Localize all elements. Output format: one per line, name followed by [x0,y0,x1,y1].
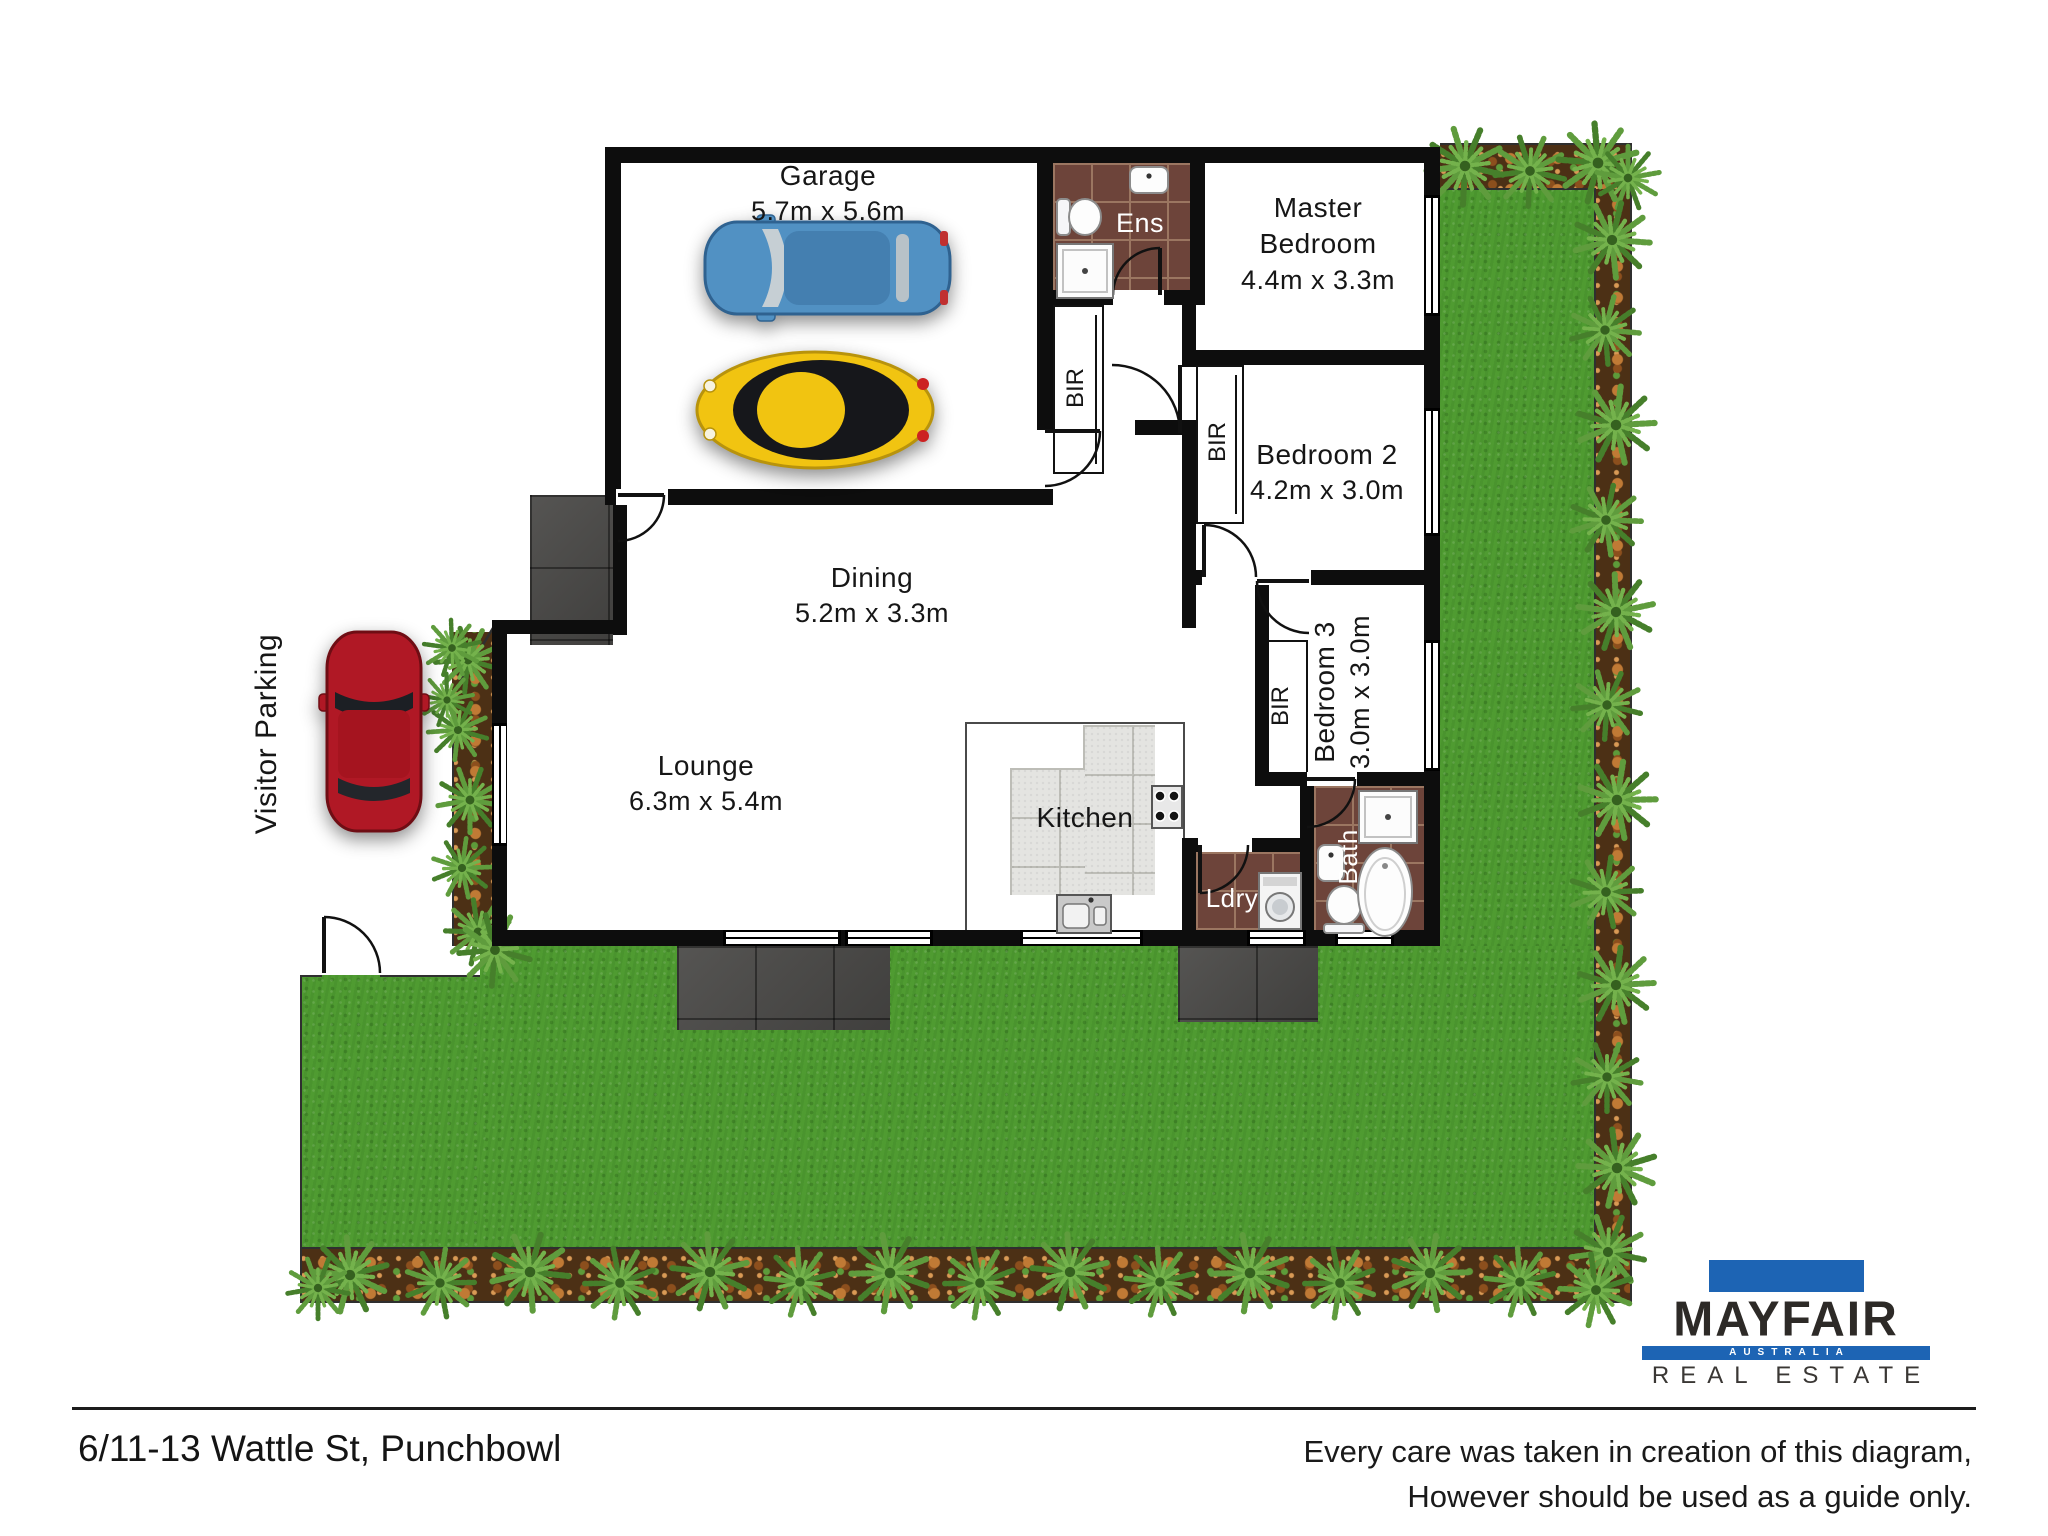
room-dims: 6.3m x 5.4m [586,784,826,819]
bedroom2-door [1202,523,1258,579]
shower-icon [1358,790,1418,844]
window-laundry [1247,930,1306,946]
disclaimer-line2: However should be used as a guide only. [1303,1475,1972,1520]
room-dims: 4.4m x 3.3m [1196,263,1440,298]
fern-plant-icon [1567,563,1664,660]
logo-tagline: REAL ESTATE [1636,1362,1936,1390]
garage-entry-door [616,493,670,547]
room-dims: 5.2m x 3.3m [752,596,992,631]
car-blue-top-view [700,213,955,323]
window-lounge-left [492,723,507,846]
lounge-label: Lounge 6.3m x 5.4m [586,748,826,819]
laundry-label: Ldry [1192,882,1272,916]
room-dims: 4.2m x 3.0m [1222,473,1432,508]
car-red-top-view [318,628,430,835]
patio-lounge [677,946,890,1030]
sink-icon [1128,165,1170,195]
footer-divider [72,1407,1976,1410]
bir-label-bedroom2: BIR [1204,402,1232,482]
window-lounge2 [845,930,933,946]
fern-plant-icon [1200,1223,1301,1324]
front-gate-door [320,913,384,977]
wall-master-bottom [1196,350,1424,365]
room-dims: 5.7m x 5.6m [708,194,948,229]
room-dims: 3.0m x 3.0m [1343,612,1378,772]
toilet-icon [1055,194,1103,240]
bath-label: Bath [1332,807,1366,907]
wall-hall-lower [1182,435,1196,628]
fern-plant-icon [1024,1226,1116,1318]
fern-plant-icon [1381,1224,1479,1322]
dining-label: Dining 5.2m x 3.3m [752,560,992,631]
fern-plant-icon [1565,479,1648,562]
wall-hall-upper [1182,290,1196,367]
room-name: Lounge [586,748,826,784]
fern-plant-icon [664,1226,756,1318]
room-name: Bedroom 3 [1307,612,1343,772]
disclaimer-text: Every care was taken in creation of this… [1303,1430,1972,1520]
fern-plant-icon [483,1225,577,1319]
patio-laundry [1178,946,1318,1022]
car-yellow-top-view [693,348,938,472]
hall-door [1043,429,1105,491]
bedroom3-door [1255,579,1311,635]
ensuite-label: Ens [1100,206,1180,241]
kitchen-label: Kitchen [1005,800,1165,836]
garage-label: Garage 5.7m x 5.6m [708,158,948,229]
room-name: Master [1196,190,1440,226]
fern-plant-icon [840,1223,941,1324]
disclaimer-line1: Every care was taken in creation of this… [1303,1430,1972,1475]
master-bedroom-door [1110,363,1182,435]
master-bedroom-label: Master Bedroom 4.4m x 3.3m [1196,190,1440,298]
wall-garage-bottom [605,489,1053,505]
wall-lounge-step [492,620,627,634]
bir-label-bedroom3: BIR [1267,666,1295,746]
bedroom2-label: Bedroom 2 4.2m x 3.0m [1222,437,1432,508]
room-name: Bedroom [1196,226,1440,262]
fern-plant-icon [1567,376,1665,474]
visitor-parking-label: Visitor Parking [247,614,307,854]
wall-garage-left [605,147,621,505]
kitchen-sink-icon [1056,894,1112,934]
fern-plant-icon [1571,940,1661,1030]
window-lounge [723,930,841,946]
room-name: Bedroom 2 [1222,437,1432,473]
logo-blue-flag [1709,1260,1864,1292]
mayfair-logo: MAYFAIR AUSTRALIA REAL ESTATE [1636,1260,1936,1390]
wall-garage-hall [1037,147,1053,430]
fern-plant-icon [1566,194,1658,286]
window-bedroom3 [1424,640,1440,771]
logo-country-bar: AUSTRALIA [1642,1346,1930,1360]
logo-brand-text: MAYFAIR [1636,1296,1936,1345]
fence-line [300,975,302,1303]
ensuite-door [1111,246,1166,301]
room-name: Dining [752,560,992,596]
property-address: 6/11-13 Wattle St, Punchbowl [78,1428,561,1470]
bir-label-hall: BIR [1062,348,1090,428]
shower-icon [1056,243,1114,299]
bedroom3-label: Bedroom 3 3.0m x 3.0m [1307,612,1397,772]
fence-line [300,975,322,977]
floor-plan-page: Garage 5.7m x 5.6m Dining 5.2m x 3.3m Lo… [0,0,2048,1536]
room-name: Garage [708,158,948,194]
